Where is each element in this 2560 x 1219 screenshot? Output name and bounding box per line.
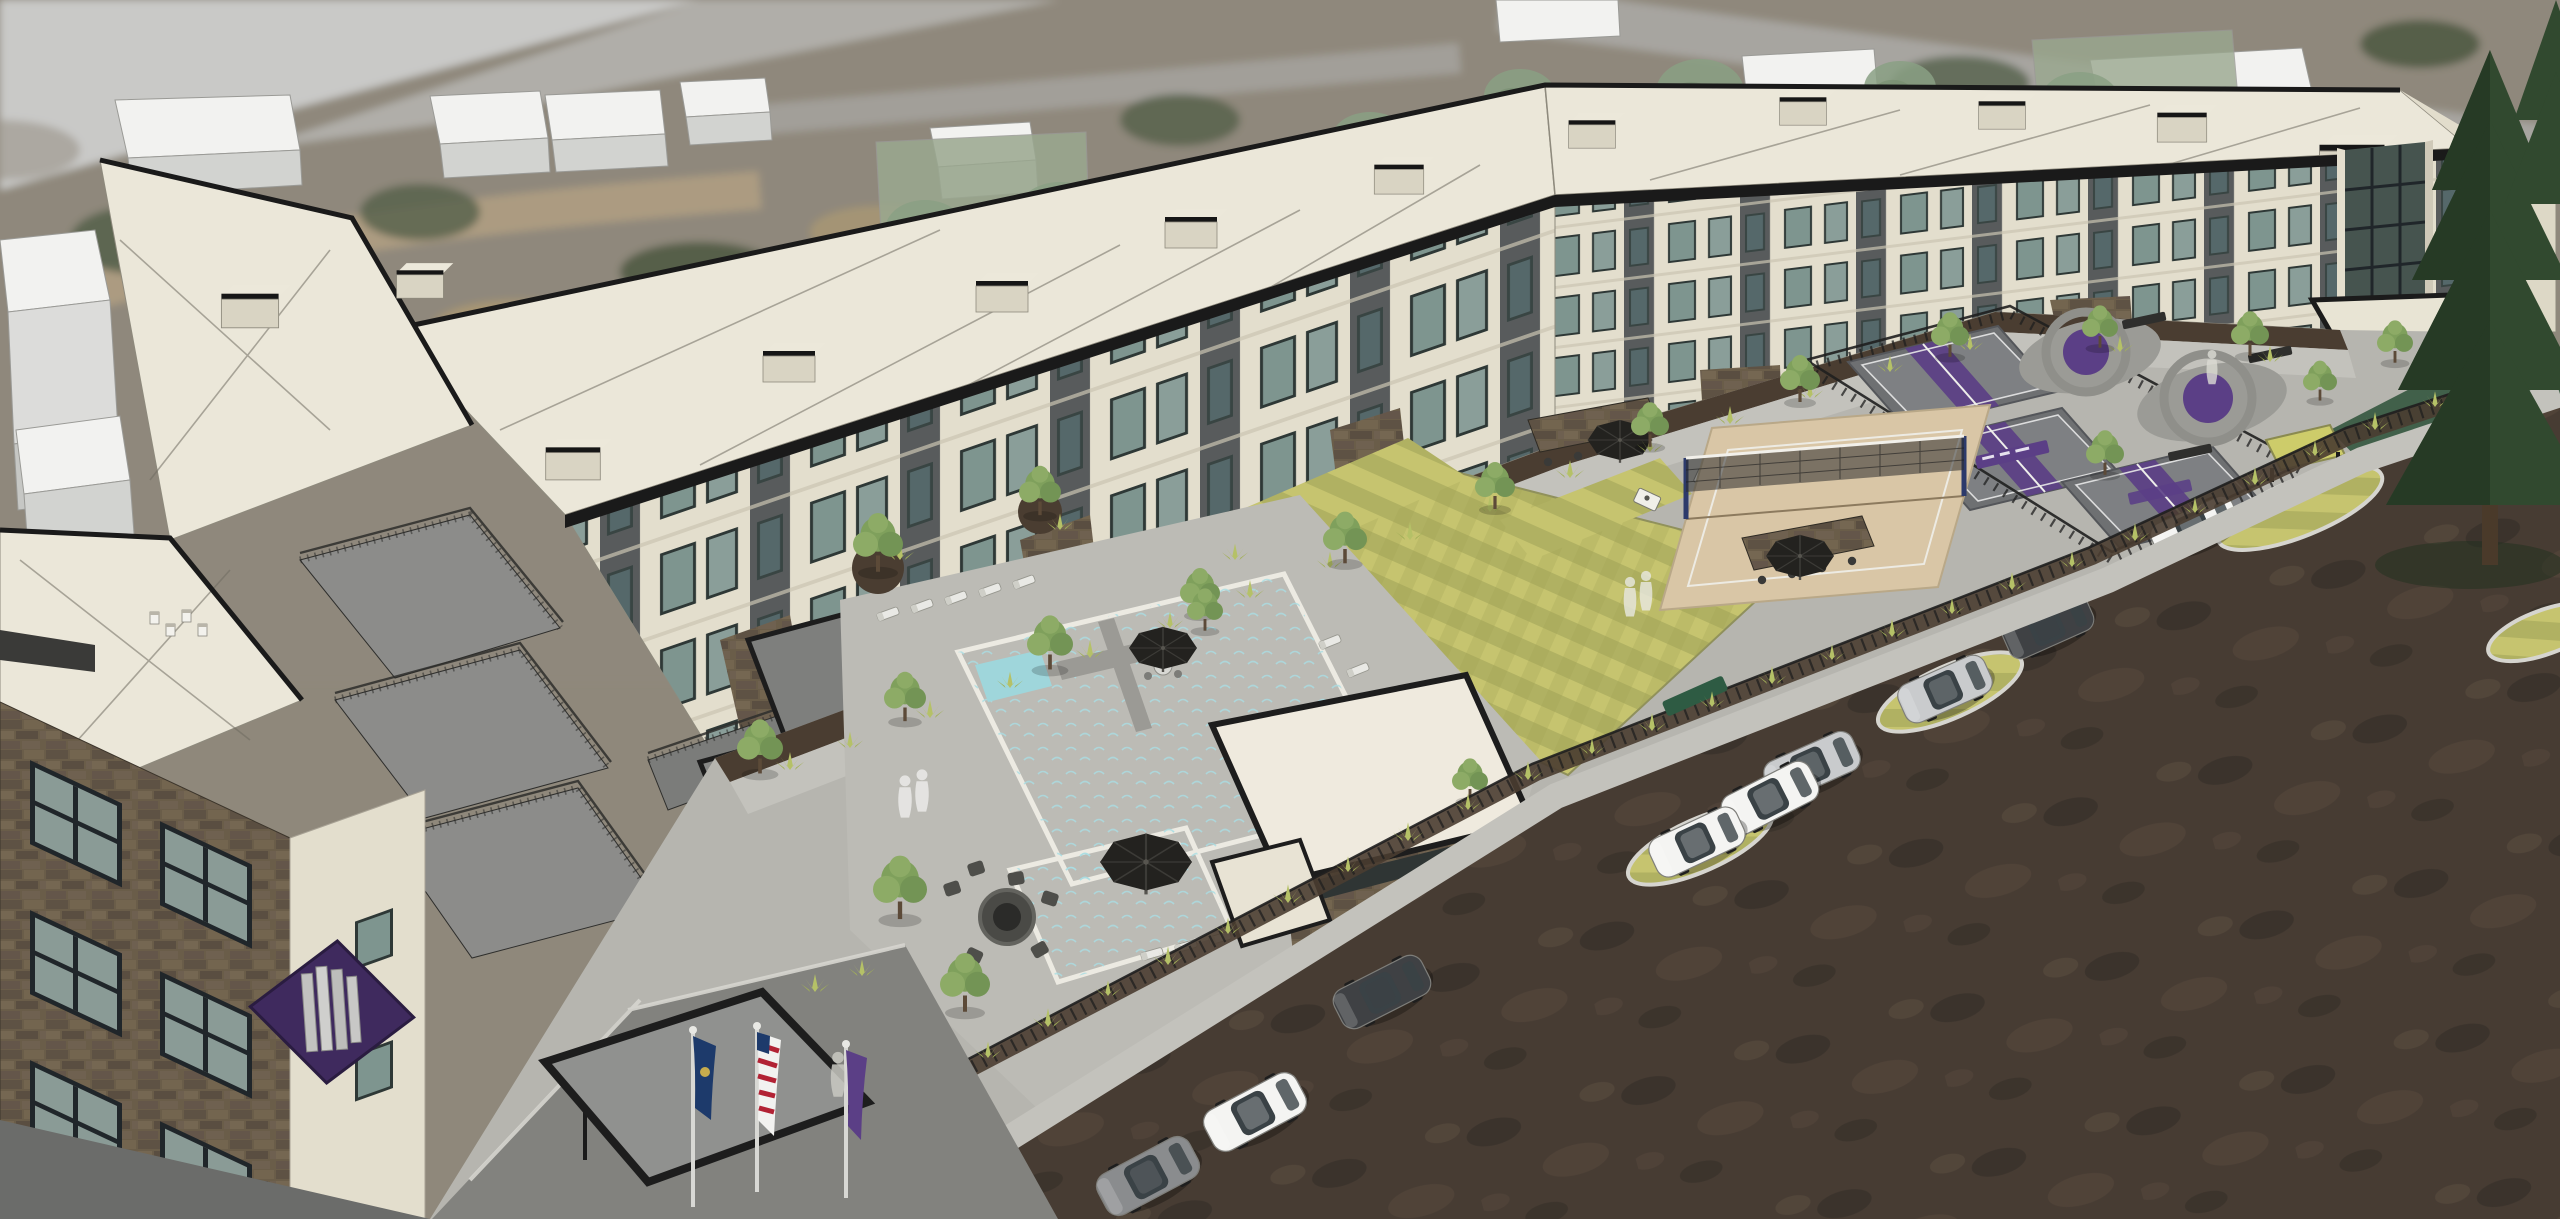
rendering-stage (0, 0, 2560, 1219)
lounge-chair (1007, 871, 1025, 887)
glass-stair-tower (2337, 140, 2433, 312)
person (2207, 350, 2218, 384)
context-block (430, 91, 550, 178)
context-block (680, 78, 772, 145)
person-entry (831, 1052, 845, 1097)
volleyball-court (1660, 405, 1990, 610)
context-block (1496, 0, 1620, 42)
context-block (545, 90, 668, 172)
aerial-rendering (0, 0, 2560, 1219)
